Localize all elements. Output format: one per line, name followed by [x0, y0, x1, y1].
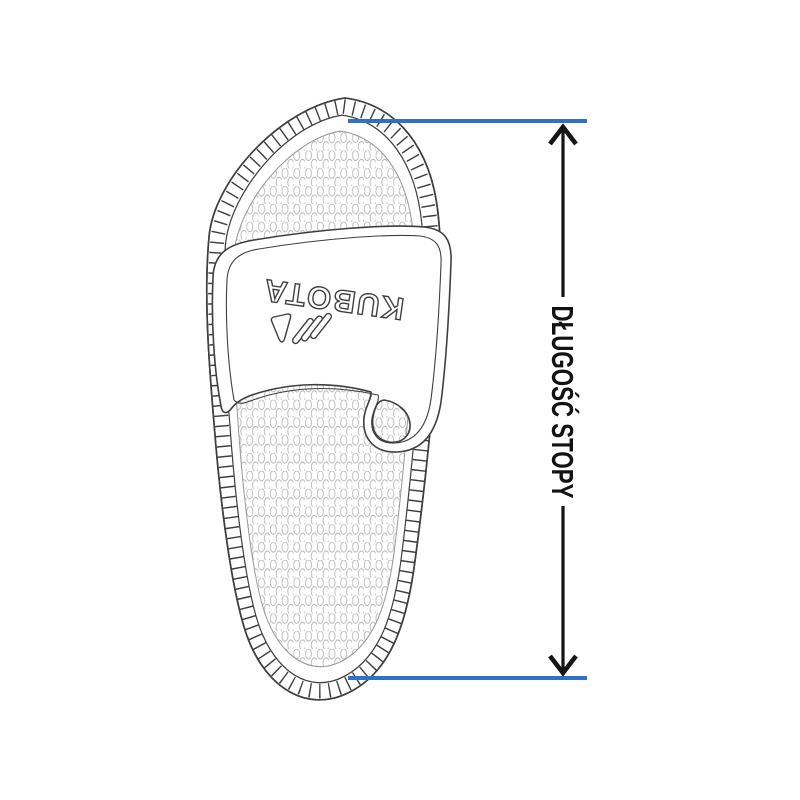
sandal-illustration: KUBOTA [207, 98, 451, 700]
size-guide-diagram: KUBOTA [0, 0, 800, 800]
size-guide-page: KUBOTA [0, 0, 800, 800]
measurement-label: DŁUGOŚĆ STOPY [545, 306, 581, 499]
